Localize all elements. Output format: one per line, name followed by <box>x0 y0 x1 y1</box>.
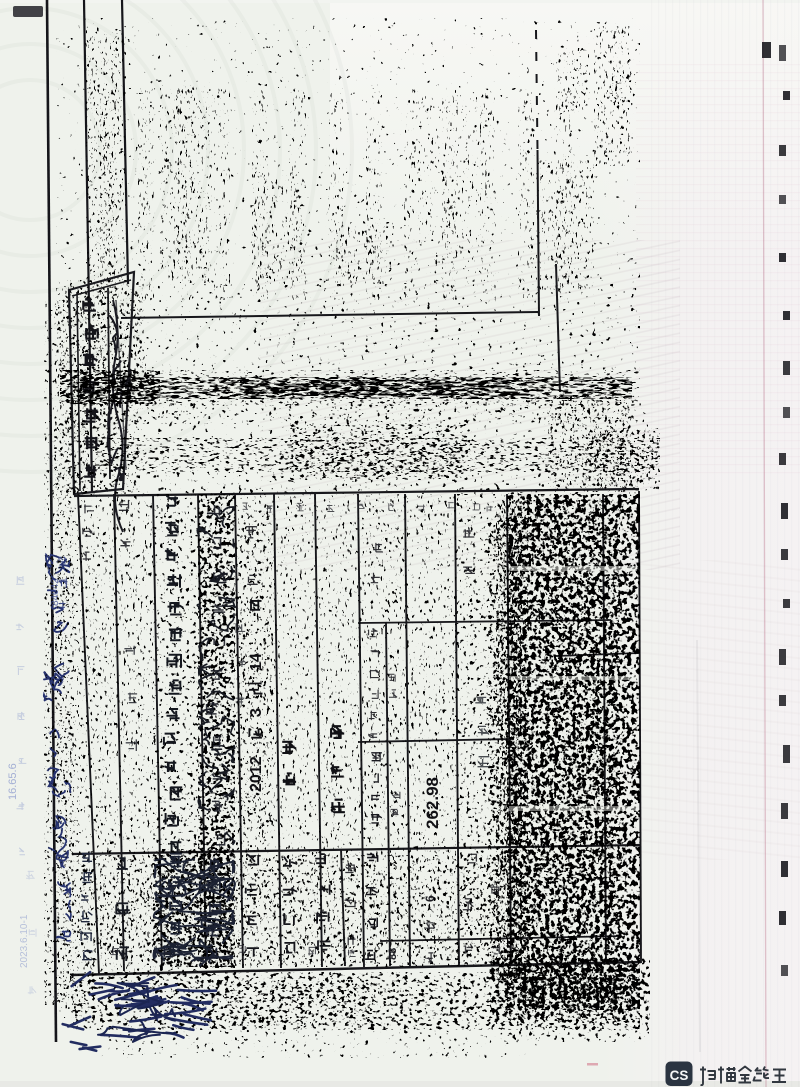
svg-text:262.98: 262.98 <box>423 777 442 829</box>
svg-text:88: 88 <box>387 948 399 960</box>
svg-text:CS: CS <box>670 1068 689 1083</box>
svg-text:6: 6 <box>423 895 437 902</box>
svg-text:14: 14 <box>248 653 265 671</box>
svg-text:3: 3 <box>248 708 265 717</box>
svg-text:2023.6.10-1: 2023.6.10-1 <box>19 914 30 968</box>
svg-text:2012: 2012 <box>248 756 265 792</box>
svg-text:16.65.6: 16.65.6 <box>7 763 19 800</box>
